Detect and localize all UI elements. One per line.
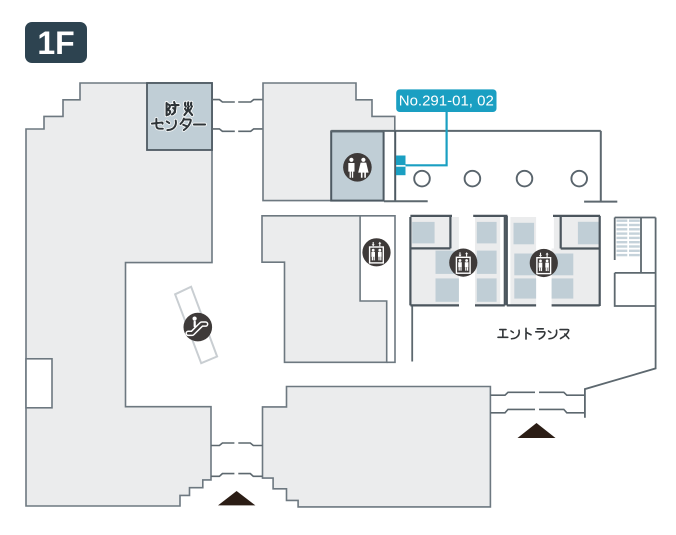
svg-text:No.291-01, 02: No.291-01, 02: [399, 93, 494, 110]
svg-text:1F: 1F: [37, 25, 74, 61]
